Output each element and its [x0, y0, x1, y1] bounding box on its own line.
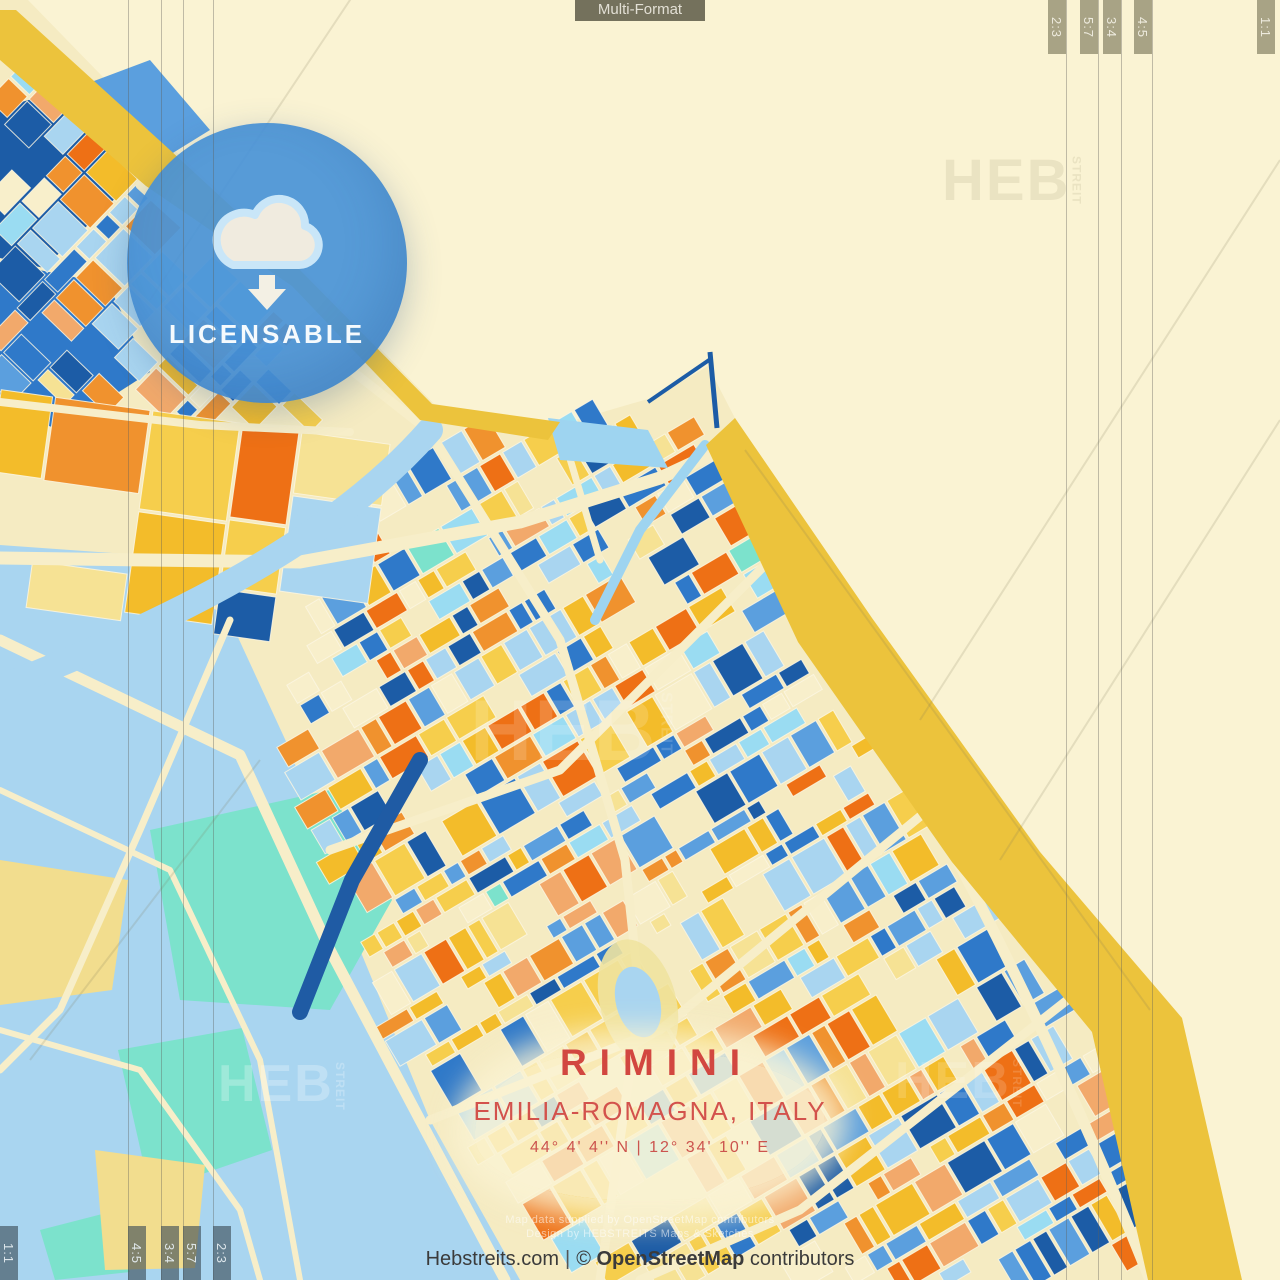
crop-line	[183, 0, 184, 1280]
badge-label: LICENSABLE	[169, 319, 365, 350]
osm-credit: OpenStreetMap	[597, 1248, 745, 1270]
aspect-mark-4-5: 4:5	[1134, 0, 1152, 54]
map-poster: HEB STREIT HEB STREIT HEB STREIT HEB STR…	[0, 0, 1280, 1280]
cloud-download-icon	[192, 177, 342, 317]
aspect-mark-3-4: 3:4	[1103, 0, 1121, 54]
aspect-mark-1-1: 1:1	[1257, 0, 1275, 54]
licensable-badge[interactable]: LICENSABLE	[127, 123, 407, 403]
crop-line	[1098, 0, 1099, 1280]
footer-credit: Hebstreits.com|© OpenStreetMap contribut…	[0, 1248, 1280, 1271]
contributors-label: contributors	[750, 1248, 855, 1270]
site-credit: Hebstreits.com	[426, 1248, 559, 1270]
design-credit: Design by HEBSTREITS Maps & Sketches	[0, 1228, 1280, 1240]
format-label: Multi-Format	[575, 0, 705, 21]
crop-line	[1152, 0, 1153, 1280]
crop-line	[1121, 0, 1122, 1280]
aspect-mark-5-7: 5:7	[1080, 0, 1098, 54]
crop-line	[1066, 0, 1067, 1280]
field-patch	[0, 860, 128, 1005]
copyright-symbol: ©	[576, 1248, 591, 1270]
crop-line	[213, 0, 214, 1280]
crop-line	[161, 0, 162, 1280]
map-data-credit: Map data supplied by OpenStreetMap contr…	[0, 1214, 1280, 1226]
crop-line	[128, 0, 129, 1280]
aspect-mark-2-3: 2:3	[1048, 0, 1066, 54]
credit-separator: |	[559, 1248, 576, 1270]
